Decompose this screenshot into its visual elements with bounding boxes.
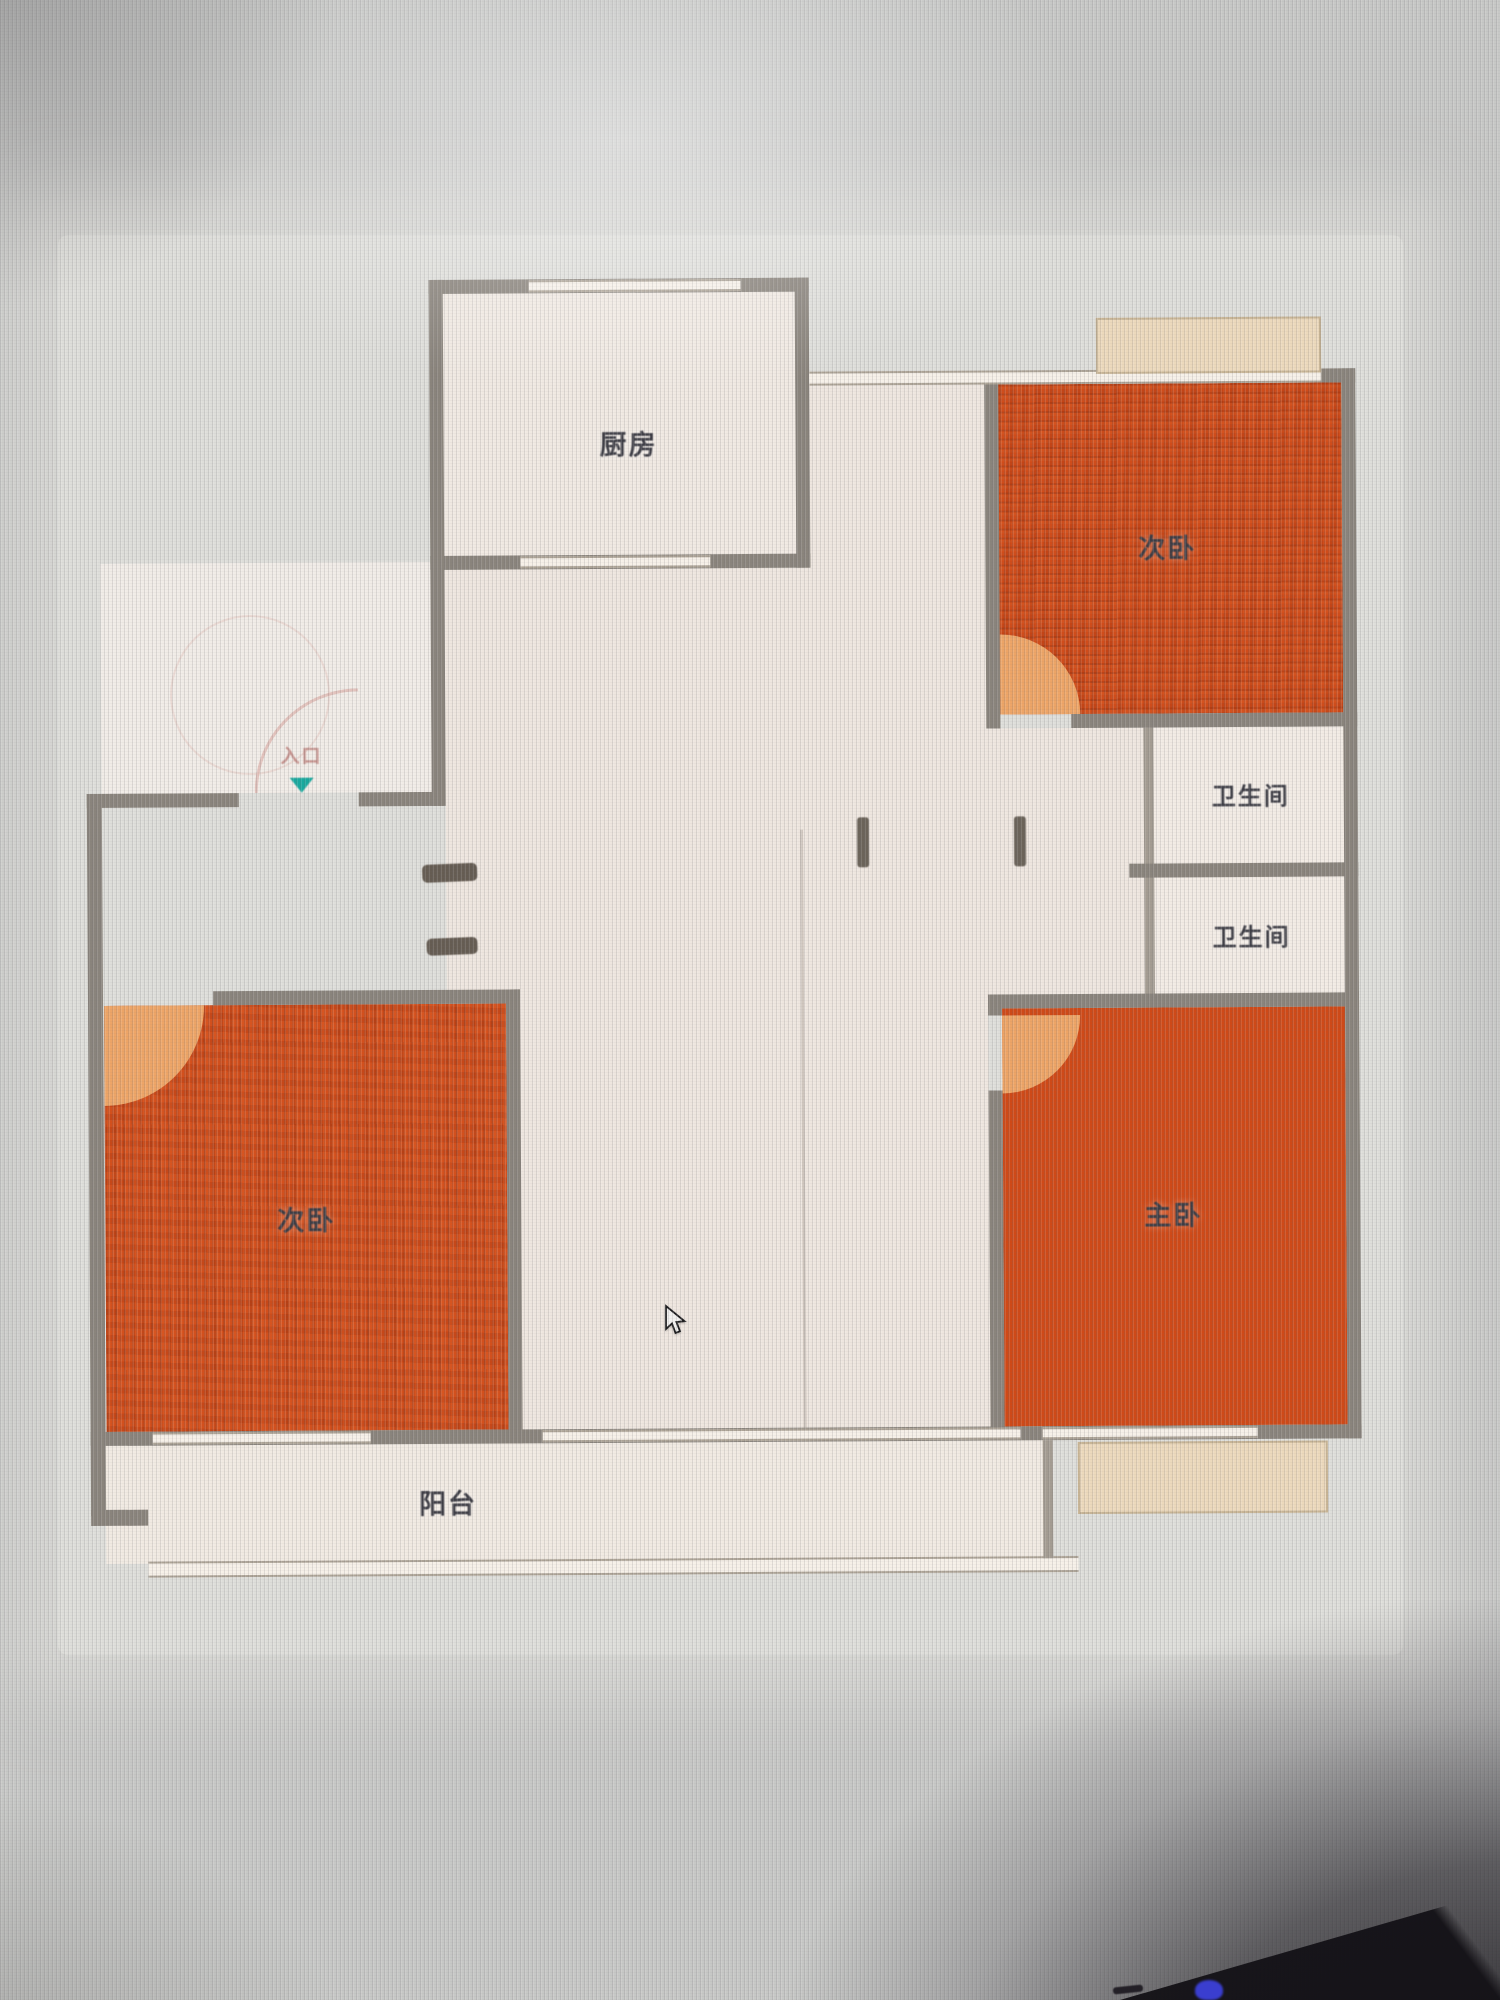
wall-master-left-lower bbox=[989, 1090, 1005, 1440]
label-balcony: 阳台 bbox=[419, 1482, 477, 1521]
screen-photo: 厨房 次卧 卫生间 卫生间 主卧 次卧 阳台 入口 bbox=[0, 0, 1500, 2000]
window-kitchen-top bbox=[529, 279, 741, 292]
wall-bedroom-tr-left bbox=[984, 384, 1000, 728]
wall-bedroom-ll-top bbox=[213, 989, 520, 1005]
plan-mark-lower bbox=[426, 937, 478, 956]
label-bedroom-lower-left: 次卧 bbox=[277, 1199, 335, 1238]
bay-window-top-right bbox=[1096, 317, 1321, 374]
window-bedroom-ll bbox=[153, 1431, 371, 1444]
hallway-floor bbox=[986, 728, 1145, 995]
label-bedroom-top-right: 次卧 bbox=[1138, 527, 1196, 566]
label-kitchen: 厨房 bbox=[599, 423, 657, 462]
wall-bath-divider bbox=[1129, 862, 1358, 877]
wall-entry-right bbox=[359, 792, 444, 807]
label-bedroom-master: 主卧 bbox=[1144, 1194, 1202, 1233]
wall-balcony-right bbox=[1043, 1440, 1054, 1558]
window-kitchen-bottom bbox=[520, 555, 710, 568]
wall-kitchen-right bbox=[795, 278, 811, 568]
living-room-floor bbox=[444, 567, 990, 1430]
wall-balcony-west bbox=[91, 1446, 106, 1516]
door-leaf-hall bbox=[857, 817, 869, 867]
label-bath-upper: 卫生间 bbox=[1212, 776, 1290, 811]
cursor-arrow-icon bbox=[664, 1304, 690, 1338]
wall-entry-left bbox=[87, 793, 239, 808]
wall-master-top bbox=[988, 992, 1359, 1008]
wall-master-left-upper bbox=[988, 994, 1002, 1015]
window-master bbox=[1043, 1426, 1258, 1439]
taskbar-blue-dot bbox=[1195, 1980, 1223, 2000]
balcony-floor bbox=[106, 1440, 1054, 1564]
entrance-arrow-icon bbox=[290, 778, 314, 793]
door-leaf-bedroom-tr bbox=[1014, 816, 1026, 866]
label-bath-lower: 卫生间 bbox=[1213, 917, 1291, 952]
wall-west-outer bbox=[87, 794, 106, 1446]
floorplan: 厨房 次卧 卫生间 卫生间 主卧 次卧 阳台 入口 bbox=[0, 0, 1500, 2000]
bay-window-bottom-right bbox=[1078, 1440, 1328, 1514]
wall-bedroom-tr-bottom bbox=[1071, 712, 1357, 728]
label-entrance: 入口 bbox=[280, 741, 322, 768]
plan-mark-upper bbox=[422, 863, 478, 883]
mouse-cursor bbox=[664, 1304, 690, 1343]
wall-balcony-step bbox=[91, 1510, 148, 1526]
wall-bedroom-ll-right bbox=[506, 989, 523, 1443]
